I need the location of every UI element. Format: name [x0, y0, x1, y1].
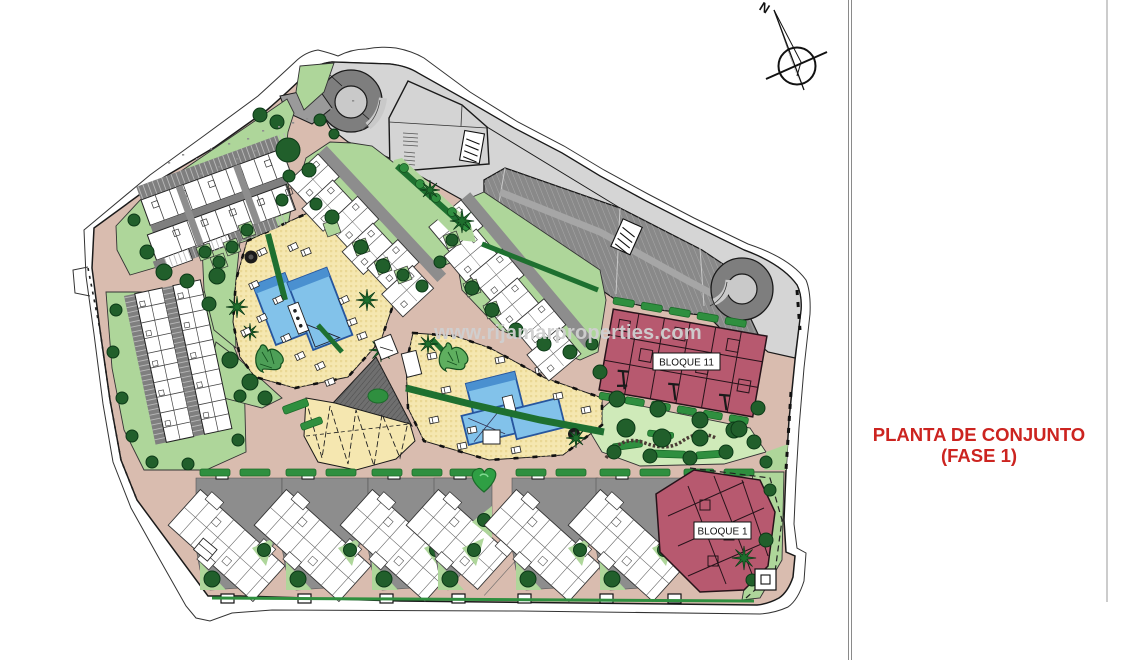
svg-text:(FASE 1): (FASE 1) — [941, 445, 1017, 466]
svg-text:BLOQUE 1: BLOQUE 1 — [697, 527, 747, 538]
svg-text:www.rijamarproperties.com: www.rijamarproperties.com — [433, 322, 702, 344]
svg-text:PLANTA DE CONJUNTO: PLANTA DE CONJUNTO — [873, 424, 1085, 445]
svg-text:BLOQUE 11: BLOQUE 11 — [659, 358, 714, 369]
